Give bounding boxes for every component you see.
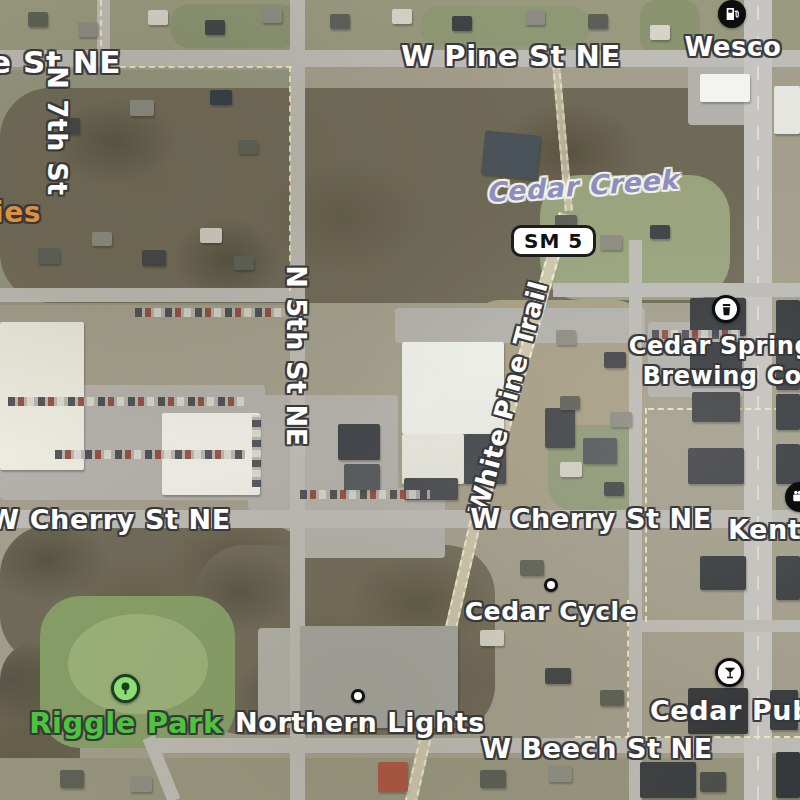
- building: [776, 444, 800, 484]
- house: [525, 10, 545, 25]
- boundary-line: [100, 66, 292, 68]
- house: [130, 100, 154, 116]
- poi-label-wesco[interactable]: Wesco: [684, 32, 781, 62]
- cedar-cycle-marker[interactable]: [544, 578, 558, 592]
- house: [588, 14, 608, 29]
- road-label-n7th: N 7th St: [42, 66, 73, 195]
- poi-label-riggle-park[interactable]: Riggle Park: [29, 706, 223, 740]
- road-label-beech: W Beech St NE: [481, 733, 713, 764]
- house: [600, 235, 622, 250]
- house: [205, 20, 225, 35]
- building: [640, 762, 696, 798]
- beer-icon[interactable]: [712, 295, 740, 323]
- house: [548, 766, 572, 782]
- road-label-cherry-left: W Cherry St NE: [0, 504, 231, 535]
- road-label-cherry-right: W Cherry St NE: [470, 503, 711, 534]
- house-red-roof: [378, 762, 408, 792]
- house: [78, 22, 98, 37]
- road-side-street: [642, 620, 800, 632]
- parked-cars-row: [55, 450, 245, 459]
- house: [60, 770, 84, 788]
- poi-label-brewery-line2[interactable]: Brewing Co.: [642, 362, 800, 390]
- house: [650, 25, 670, 40]
- building: [338, 424, 380, 460]
- park-field: [68, 614, 208, 714]
- building: [0, 322, 84, 470]
- cocktail-glyph: [722, 665, 738, 681]
- movie-camera-glyph: [791, 488, 800, 506]
- satellite-map-canvas[interactable]: SM 5 e St NE W Pine St NE N 7th St N 5th…: [0, 0, 800, 800]
- house: [38, 248, 60, 264]
- house: [545, 668, 571, 684]
- road-centerline: [757, 0, 759, 800]
- house: [234, 256, 254, 270]
- house: [210, 90, 232, 105]
- building: [402, 434, 464, 484]
- house: [200, 228, 222, 243]
- road-side-street: [0, 288, 300, 302]
- house: [650, 225, 670, 239]
- park-tree-icon[interactable]: [111, 674, 140, 703]
- building: [545, 408, 575, 448]
- house: [28, 12, 48, 27]
- house: [262, 8, 282, 23]
- house: [480, 630, 504, 646]
- poi-label-cedar-pub[interactable]: Cedar Pub: [650, 695, 800, 726]
- road-label-n5th: N 5th St NE: [281, 265, 312, 447]
- house: [600, 690, 624, 706]
- poi-label-northern-lights[interactable]: Northern Lights: [235, 707, 485, 738]
- poi-label-left-partial[interactable]: ies: [0, 196, 41, 229]
- building: [700, 556, 746, 590]
- poi-label-kent-theatre[interactable]: Kent Th: [728, 514, 800, 545]
- boundary-line: [289, 66, 291, 291]
- house: [480, 770, 506, 788]
- house: [392, 9, 412, 24]
- house: [604, 482, 624, 496]
- house: [560, 396, 580, 410]
- road-label-pine: W Pine St NE: [401, 39, 621, 73]
- house: [556, 330, 576, 345]
- house: [560, 462, 582, 477]
- building-kent-theatre: [776, 556, 800, 600]
- fuel-pump-icon[interactable]: [718, 0, 746, 28]
- tree-glyph: [117, 680, 134, 697]
- house: [610, 412, 632, 427]
- parked-cars-row: [252, 415, 261, 487]
- poi-label-cedar-cycle[interactable]: Cedar Cycle: [465, 597, 638, 626]
- movie-camera-icon[interactable]: [785, 482, 800, 512]
- beer-glyph: [719, 302, 734, 317]
- building: [774, 86, 800, 134]
- building: [776, 394, 800, 430]
- building-church: [481, 130, 541, 180]
- fuel-pump-glyph: [724, 6, 740, 22]
- road-side-street: [553, 283, 800, 297]
- route-badge-sm5: SM 5: [511, 225, 596, 257]
- building-wesco-canopy: [700, 74, 750, 102]
- building: [583, 438, 617, 464]
- house: [148, 10, 168, 25]
- cocktail-icon[interactable]: [715, 658, 744, 687]
- house: [142, 250, 166, 266]
- parked-cars-row: [135, 308, 285, 317]
- house: [130, 776, 152, 792]
- northern-lights-marker[interactable]: [351, 689, 365, 703]
- poi-label-brewery-line1[interactable]: Cedar Springs: [629, 332, 800, 360]
- building: [776, 752, 800, 798]
- building: [692, 392, 740, 422]
- house: [238, 140, 258, 154]
- house: [92, 232, 112, 246]
- building: [344, 464, 380, 492]
- house: [700, 772, 726, 792]
- parked-cars-row: [8, 397, 248, 406]
- house: [452, 16, 472, 31]
- house: [604, 352, 626, 368]
- house: [520, 560, 544, 576]
- house: [330, 14, 350, 29]
- parked-cars-row: [300, 490, 430, 499]
- building: [688, 448, 744, 484]
